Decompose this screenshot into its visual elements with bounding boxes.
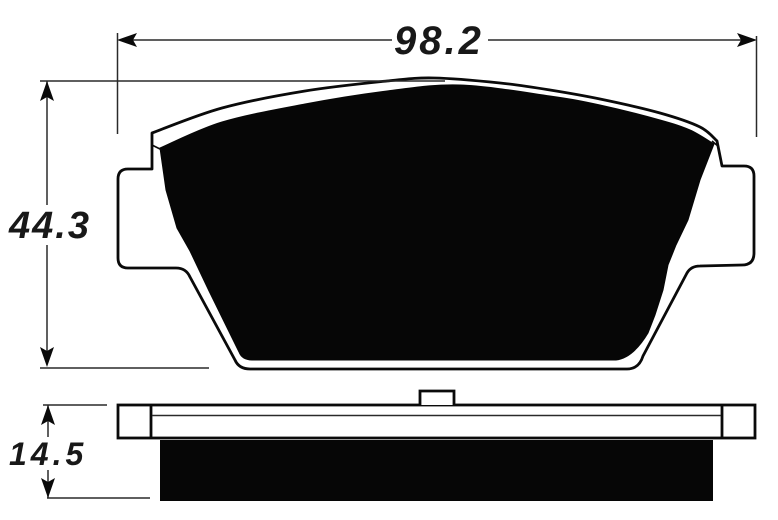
svg-text:98.2: 98.2	[394, 19, 484, 63]
svg-text:14.5: 14.5	[9, 436, 87, 472]
svg-text:44.3: 44.3	[8, 205, 91, 247]
